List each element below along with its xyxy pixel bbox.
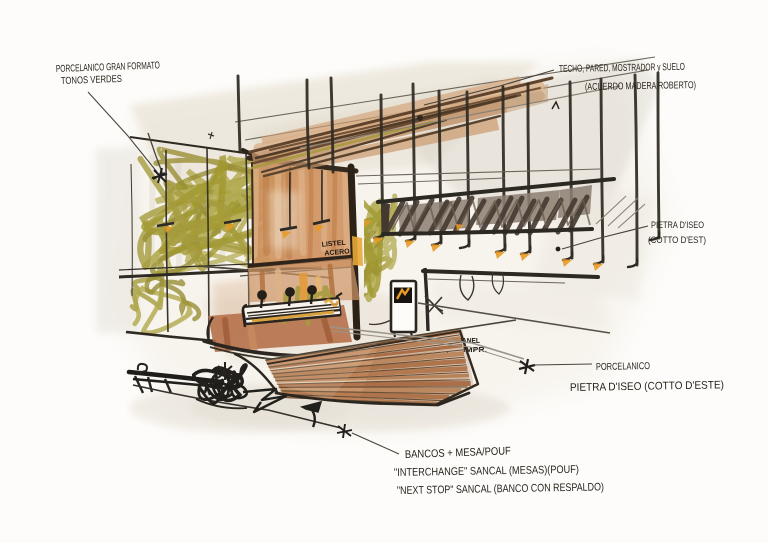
svg-text:TONOS VERDES: TONOS VERDES xyxy=(61,74,123,87)
svg-text:TECHO, PARED, MOSTRADOR y SUEL: TECHO, PARED, MOSTRADOR y SUELO xyxy=(559,62,685,75)
svg-text:(ACUERDO MADERA ROBERTO): (ACUERDO MADERA ROBERTO) xyxy=(585,80,696,93)
svg-text:PIETRA D'ISEO: PIETRA D'ISEO xyxy=(651,220,704,230)
svg-text:PORCELANICO: PORCELANICO xyxy=(596,361,650,373)
svg-text:(COTTO D'EST): (COTTO D'EST) xyxy=(648,235,706,245)
